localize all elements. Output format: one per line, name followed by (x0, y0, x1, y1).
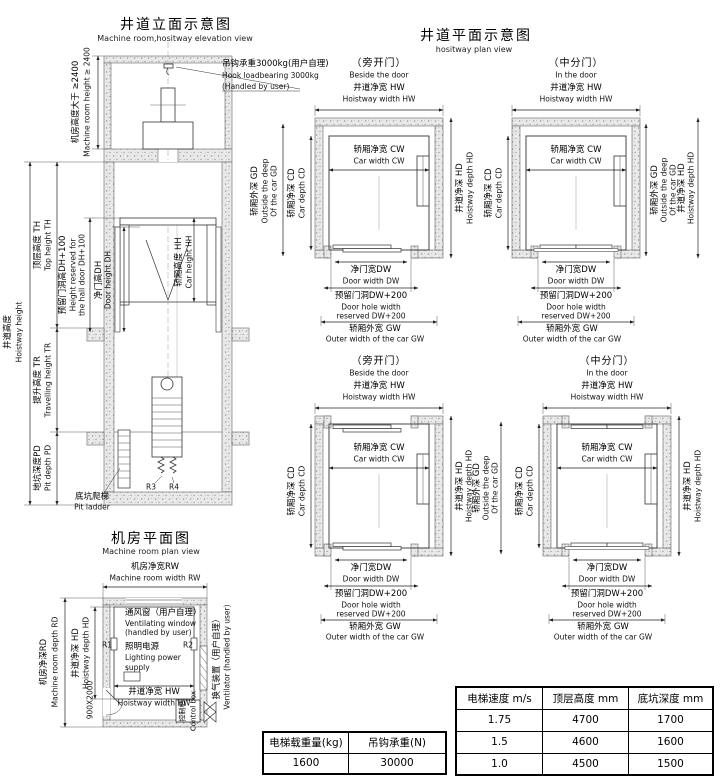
plan-1-label-hoistway-depth-en: Hoistway depth HD (687, 152, 695, 224)
plan-2-label-car-width-cn: 轿厢净宽 CW (353, 444, 404, 453)
spec-table-cell-0-2: 1700 (629, 709, 714, 731)
load-table-header-1: 吊钩承重(N) (349, 732, 447, 753)
plan-3-label-car-width-cn: 轿厢净宽 CW (581, 444, 632, 453)
plan-3-label-car-outer-width-en: Outer width of the car GW (554, 633, 652, 641)
label-machine-room-height-cn: 机房高度大于 ≥2400 (72, 61, 81, 143)
plan-0-label-car-outer-depth-en2: Of the car GD (270, 165, 278, 216)
label-hoistway-height-cn: 井道高度 (4, 315, 13, 349)
plan-2-label-door-hole-cn: 预留门洞DW+200 (335, 590, 407, 599)
label-door-height-en: Door height DH (104, 251, 112, 309)
plan-0-label-door-hole-cn: 预留门洞DW+200 (335, 292, 407, 301)
plan-0-label-door-hole-en1: Door hole width (341, 303, 401, 311)
label-top-height-en: Top height TH (44, 219, 52, 271)
load-table-header-0: 电梯载重量(kg) (263, 732, 349, 753)
plan-0-header-en: Beside the door (349, 71, 408, 79)
spec-table-cell-2-1: 4500 (543, 753, 629, 775)
plan-2-header-cn: （旁开门） (352, 357, 407, 367)
label-ventilator-en: Ventilator (handled by user) (223, 604, 231, 709)
spec-table-header-1: 顶层高度 mm (543, 687, 629, 709)
plan-2-label-door-hole-en1: Door hole width (341, 601, 401, 609)
label-pit-depth-en: Pit depth PD (44, 445, 52, 491)
label-pit-depth-cn: 地坑深度PD (34, 445, 43, 491)
spec-table-cell-1-1: 4600 (543, 731, 629, 753)
plan-1-label-hoistway-depth-cn: 井道净深 HD (678, 163, 687, 213)
label-travelling-height-cn: 提升高度 TR (34, 356, 43, 404)
load-table: 电梯载重量(kg) 吊钩承重(N) 1600 30000 (262, 731, 447, 775)
plan-3-label-car-width-en: Car width CW (581, 455, 632, 463)
label-machine-room-height-en: Machine room height ≥ 2400 (83, 47, 91, 157)
label-travelling-height-en: Travelling height TR (44, 343, 52, 417)
label-r4: R4 (169, 483, 179, 491)
plan-2-label-car-width-en: Car width CW (353, 455, 404, 463)
plan-3-label-door-hole-en1: Door hole width (577, 601, 637, 609)
spec-table-cell-2-0: 1.0 (456, 753, 543, 775)
plan-1-label-r-car-outer-depth-en1: Outside the deep (660, 158, 668, 223)
plan-2-header-en: Beside the door (349, 369, 408, 377)
plan-3-label-door-width-cn: 净门宽DW (587, 564, 627, 573)
label-mr-hoistway-depth-en: Hoistway depth HD (82, 617, 90, 689)
plan-2-label-hoistway-depth-cn: 井道净深 HD (456, 461, 465, 511)
label-door-hole-height-cn: 预留门洞高DH+100 (59, 236, 68, 315)
label-pit-ladder-en: Pit ladder (74, 503, 110, 511)
plan-1-label-door-width-en: Door width DW (548, 277, 605, 285)
plan-3-label-car-depth-cn: 轿厢净深 CD (516, 466, 525, 515)
label-car-height-cn: 轿厢高度 HH (175, 237, 184, 287)
plan-0-label-hoistway-width-cn: 井道净宽 HW (353, 84, 405, 93)
plan-1-header-cn: （中分门） (549, 59, 604, 69)
plan-2-label-car-outer-width-en: Outer width of the car GW (326, 633, 424, 641)
plan-3-label-door-width-en: Door width DW (579, 575, 636, 583)
plan-0-label-car-outer-width-en: Outer width of the car GW (326, 335, 424, 343)
plan-0-label-car-width-en: Car width CW (353, 157, 404, 165)
plan-2-label-car-outer-width-cn: 轿厢外宽 GW (349, 623, 401, 632)
label-mr-hoistway-depth-cn: 井道净深 HD (72, 628, 81, 678)
plan-2-label-car-depth-en: Car depth CD (298, 466, 306, 517)
label-room-width-en: Machine room width RW (110, 574, 201, 582)
plan-2-label-r-car-outer-depth-en2: Of the car GD (491, 462, 499, 513)
label-ventilator-cn: 换气装置（用户自理） (213, 614, 222, 699)
elevation-subtitle: Machine room,hositway elevation view (97, 35, 252, 43)
plan-3-label-car-outer-width-cn: 轿厢外宽 GW (577, 623, 629, 632)
label-vent-window-en1: Ventilating window (125, 620, 196, 628)
plan-0-header-cn: （旁开门） (352, 59, 407, 69)
load-table-cell-0-1: 30000 (349, 753, 447, 774)
label-mr-hoistway-width-cn: 井道净宽 HW (128, 688, 180, 697)
plan-0-label-car-depth-en: Car depth CD (298, 168, 306, 219)
label-door-hole-height-en1: Height reserved for (69, 239, 77, 312)
label-room-width-cn: 机房净宽RW (131, 563, 179, 572)
plan-1-label-door-hole-en1: Door hole width (546, 303, 606, 311)
plan-0-label-car-outer-depth-en1: Outside the deep (261, 159, 269, 224)
label-lighting-en1: Lighting power (125, 654, 181, 662)
plan-section-title: 井道平面示意图 (420, 29, 532, 43)
spec-table-cell-1-0: 1.5 (456, 731, 543, 753)
plan-0-label-door-width-en: Door width DW (343, 277, 400, 285)
machine-room-subtitle: Machine room plan view (102, 548, 200, 556)
plan-2-label-hoistway-width-cn: 井道净宽 HW (353, 382, 405, 391)
label-car-height-en: Car height HH (185, 236, 193, 289)
plan-1-label-door-hole-cn: 预留门洞DW+200 (540, 292, 612, 301)
plan-0-label-hoistway-width-en: Hoistway width HW (343, 95, 416, 103)
label-lighting-en2: supply (125, 664, 150, 672)
plan-1-header-en: In the door (555, 71, 596, 79)
plan-1-label-r-car-outer-depth-cn: 轿厢外深 GD (651, 165, 660, 215)
plan-2-label-door-width-en: Door width DW (343, 575, 400, 583)
plan-2-label-door-width-cn: 净门宽DW (351, 564, 391, 573)
label-door-hole-height-en2: the hall door DH+100 (78, 234, 86, 316)
spec-table-cell-0-0: 1.75 (456, 709, 543, 731)
plan-2-label-r-car-outer-depth-en1: Outside the deep (482, 456, 490, 521)
label-room-depth-en: Machine room depth RD (51, 617, 59, 708)
label-r3: R3 (146, 483, 156, 491)
plan-0-label-door-width-cn: 净门宽DW (351, 266, 391, 275)
label-vent-window-en2: (handled by user) (125, 629, 192, 637)
plan-0-label-car-depth-cn: 轿厢净深 CD (288, 168, 297, 217)
plan-2-label-r-car-outer-depth-cn: 轿厢外深 GD (473, 463, 482, 513)
label-room-depth-cn: 机房净深RD (40, 639, 49, 685)
load-table-cell-0-0: 1600 (263, 753, 349, 774)
plan-3-label-hoistway-width-en: Hoistway width HW (571, 393, 644, 401)
plan-3-label-hoistway-depth-en: Hoistway depth HD (694, 450, 702, 522)
plan-1-label-door-hole-en2: reserved DW+200 (541, 312, 610, 320)
plan-1-label-car-depth-en: Car depth CD (495, 168, 503, 219)
plan-1-label-door-width-cn: 净门宽DW (556, 266, 596, 275)
plan-1-label-car-outer-width-en: Outer width of the car GW (523, 335, 621, 343)
spec-table-cell-1-2: 1600 (629, 731, 714, 753)
plan-1-label-car-width-cn: 轿厢净宽 CW (550, 146, 601, 155)
label-hook-line2: Hook loadbearing 3000kg (222, 72, 319, 80)
plan-0-label-car-width-cn: 轿厢净宽 CW (353, 146, 404, 155)
plan-1-label-r-car-outer-depth-en2: Of the car GD (669, 164, 677, 215)
spec-table-header-0: 电梯速度 m/s (456, 687, 543, 709)
plan-2-label-hoistway-width-en: Hoistway width HW (343, 393, 416, 401)
label-pit-ladder-cn: 底坑爬梯 (75, 493, 109, 502)
plan-3-label-door-hole-cn: 预留门洞DW+200 (571, 590, 643, 599)
plan-1-label-car-depth-cn: 轿厢净深 CD (485, 168, 494, 217)
plan-1-label-hoistway-width-en: Hoistway width HW (540, 95, 613, 103)
plan-2-label-car-depth-cn: 轿厢净深 CD (288, 466, 297, 515)
label-door-height-cn: 净门高DH (95, 261, 104, 299)
label-hook-line1: 吊钩承重3000kg(用户自理) (222, 60, 329, 69)
label-control-box-cn: 控制柜 (180, 701, 187, 722)
plan-0-label-car-outer-depth-cn: 轿厢外深 GD (251, 166, 260, 216)
label-control-box-en: Control box (191, 691, 198, 731)
plan-1-label-car-outer-width-cn: 轿厢外宽 GW (546, 325, 598, 334)
spec-table-header-2: 底坑深度 mm (629, 687, 714, 709)
plan-3-label-hoistway-width-cn: 井道净宽 HW (581, 382, 633, 391)
label-r2: R2 (183, 641, 193, 649)
label-r1: R1 (102, 641, 112, 649)
label-lighting-cn: 照明电源 (125, 643, 159, 652)
spec-table: 电梯速度 m/s 顶层高度 mm 底坑深度 mm 1.75 4700 1700 … (455, 686, 714, 776)
plan-3-header-cn: （中分门） (580, 357, 635, 367)
plan-1-label-car-width-en: Car width CW (550, 157, 601, 165)
plan-3-label-door-hole-en2: reserved DW+200 (572, 610, 641, 618)
plan-0-label-door-hole-en2: reserved DW+200 (336, 312, 405, 320)
elevation-title: 井道立面示意图 (120, 18, 232, 32)
plan-0-label-car-outer-width-cn: 轿厢外宽 GW (349, 325, 401, 334)
machine-room-title: 机房平面图 (111, 532, 191, 546)
plan-0-label-hoistway-depth-en: Hoistway depth HD (466, 152, 474, 224)
plan-section-subtitle: hositway plan view (436, 46, 512, 54)
plan-2-label-door-hole-en2: reserved DW+200 (336, 610, 405, 618)
label-vent-window-cn: 通风窗（用户自理） (125, 609, 202, 618)
label-hook-line3: (Handled by user) (222, 83, 289, 91)
spec-table-cell-2-2: 1500 (629, 753, 714, 775)
label-top-height-cn: 顶层高度 TH (34, 221, 43, 269)
plan-3-label-hoistway-depth-cn: 井道净深 HD (684, 461, 693, 511)
spec-table-cell-0-1: 4700 (543, 709, 629, 731)
plan-3-header-en: In the door (586, 369, 627, 377)
plan-1-label-hoistway-width-cn: 井道净宽 HW (550, 84, 602, 93)
label-hoistway-height-en: Hoistway height (15, 302, 23, 363)
plan-3-label-car-depth-en: Car depth CD (526, 466, 534, 517)
plan-0-label-hoistway-depth-cn: 井道净深 HD (456, 163, 465, 213)
page: 井道立面示意图 Machine room,hositway elevation … (0, 0, 720, 783)
